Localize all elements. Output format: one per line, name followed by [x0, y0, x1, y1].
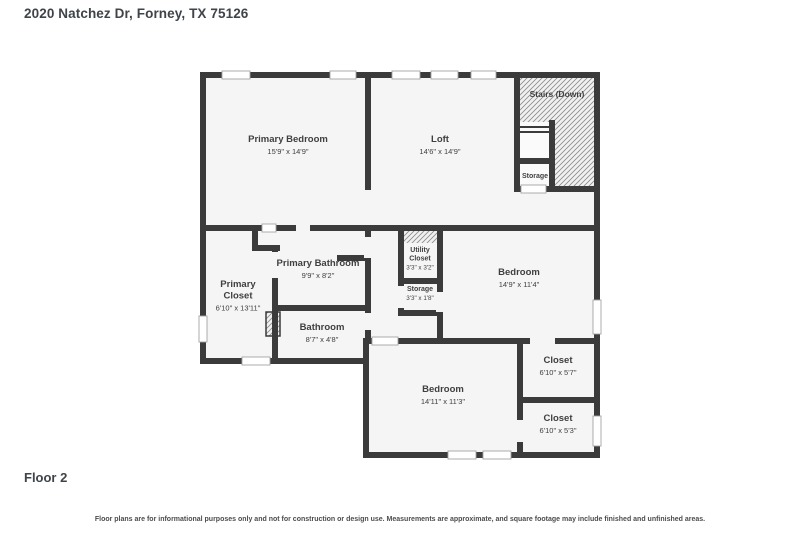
wall: [398, 278, 443, 284]
room-label-primary-bedroom: Primary Bedroom: [248, 134, 328, 145]
room-dims-bedroom-right: 14'9" x 11'4": [499, 280, 540, 289]
room-dims-closet-bottom: 6'10" x 5'3": [540, 426, 577, 435]
wall: [200, 358, 369, 364]
disclaimer-text: Floor plans are for informational purpos…: [0, 516, 800, 523]
room-dims-primary-bedroom: 15'9" x 14'9": [267, 147, 308, 156]
window-opening: [372, 337, 398, 345]
window-opening: [471, 71, 496, 79]
floor-plan-svg: Primary Bedroom15'9" x 14'9"Loft14'6" x …: [0, 0, 800, 533]
room-dims-primary-bathroom: 9'9" x 8'2": [302, 271, 335, 280]
door-opening: [364, 313, 372, 330]
door-opening: [364, 237, 372, 258]
door-opening: [397, 286, 405, 308]
window-opening: [242, 357, 270, 365]
room-label-storage: Storage: [407, 286, 433, 293]
room-label-loft: Loft: [431, 134, 450, 145]
room-label-stairs-storage: Storage: [522, 173, 548, 180]
wall: [514, 72, 520, 192]
window-opening: [431, 71, 458, 79]
wall: [437, 231, 443, 344]
room-dims-loft: 14'6" x 14'9": [419, 147, 460, 156]
wall: [365, 72, 371, 190]
wall: [200, 225, 600, 231]
room-label-closet-bottom: Closet: [543, 413, 573, 424]
room-dims-utility-closet: 3'3" x 3'2": [406, 265, 434, 272]
room-dims-bathroom: 8'7" x 4'8": [306, 335, 339, 344]
window-opening: [593, 300, 601, 334]
wall: [549, 120, 555, 192]
hatch-area: [404, 231, 437, 243]
room-label-primary-bathroom: Primary Bathroom: [277, 258, 360, 269]
door-opening: [296, 224, 310, 232]
room-dims-storage: 3'3" x 1'8": [406, 295, 434, 302]
window-opening: [593, 416, 601, 446]
window-opening: [199, 316, 207, 342]
window-opening: [392, 71, 420, 79]
window-opening: [448, 451, 476, 459]
window-opening: [330, 71, 356, 79]
room-label-stairs-down: Stairs (Down): [530, 89, 585, 99]
wall: [363, 338, 600, 344]
room-dims-primary-closet: 6'10" x 13'11": [216, 304, 261, 313]
room-label-bedroom-right: Bedroom: [498, 267, 540, 278]
wall: [363, 452, 600, 458]
door-opening: [530, 337, 555, 345]
room-dims-closet-top: 6'10" x 5'7": [540, 368, 577, 377]
room-label-closet-top: Closet: [543, 355, 573, 366]
door-opening: [436, 292, 444, 312]
wall: [272, 305, 371, 311]
floor-label: Floor 2: [24, 470, 67, 485]
window-opening: [222, 71, 250, 79]
room-label-bedroom-bottom: Bedroom: [422, 384, 464, 395]
window-opening: [483, 451, 511, 459]
wall: [514, 158, 555, 164]
window-opening: [262, 224, 276, 232]
wall: [363, 338, 369, 458]
room-label-utility-closet: UtilityCloset: [409, 247, 431, 263]
room-label-bathroom: Bathroom: [300, 322, 345, 333]
window-opening: [521, 185, 546, 193]
door-opening: [516, 420, 524, 442]
room-dims-bedroom-bottom: 14'11" x 11'3": [421, 397, 466, 406]
wall: [517, 397, 600, 403]
room-label-primary-closet: PrimaryCloset: [220, 279, 256, 302]
